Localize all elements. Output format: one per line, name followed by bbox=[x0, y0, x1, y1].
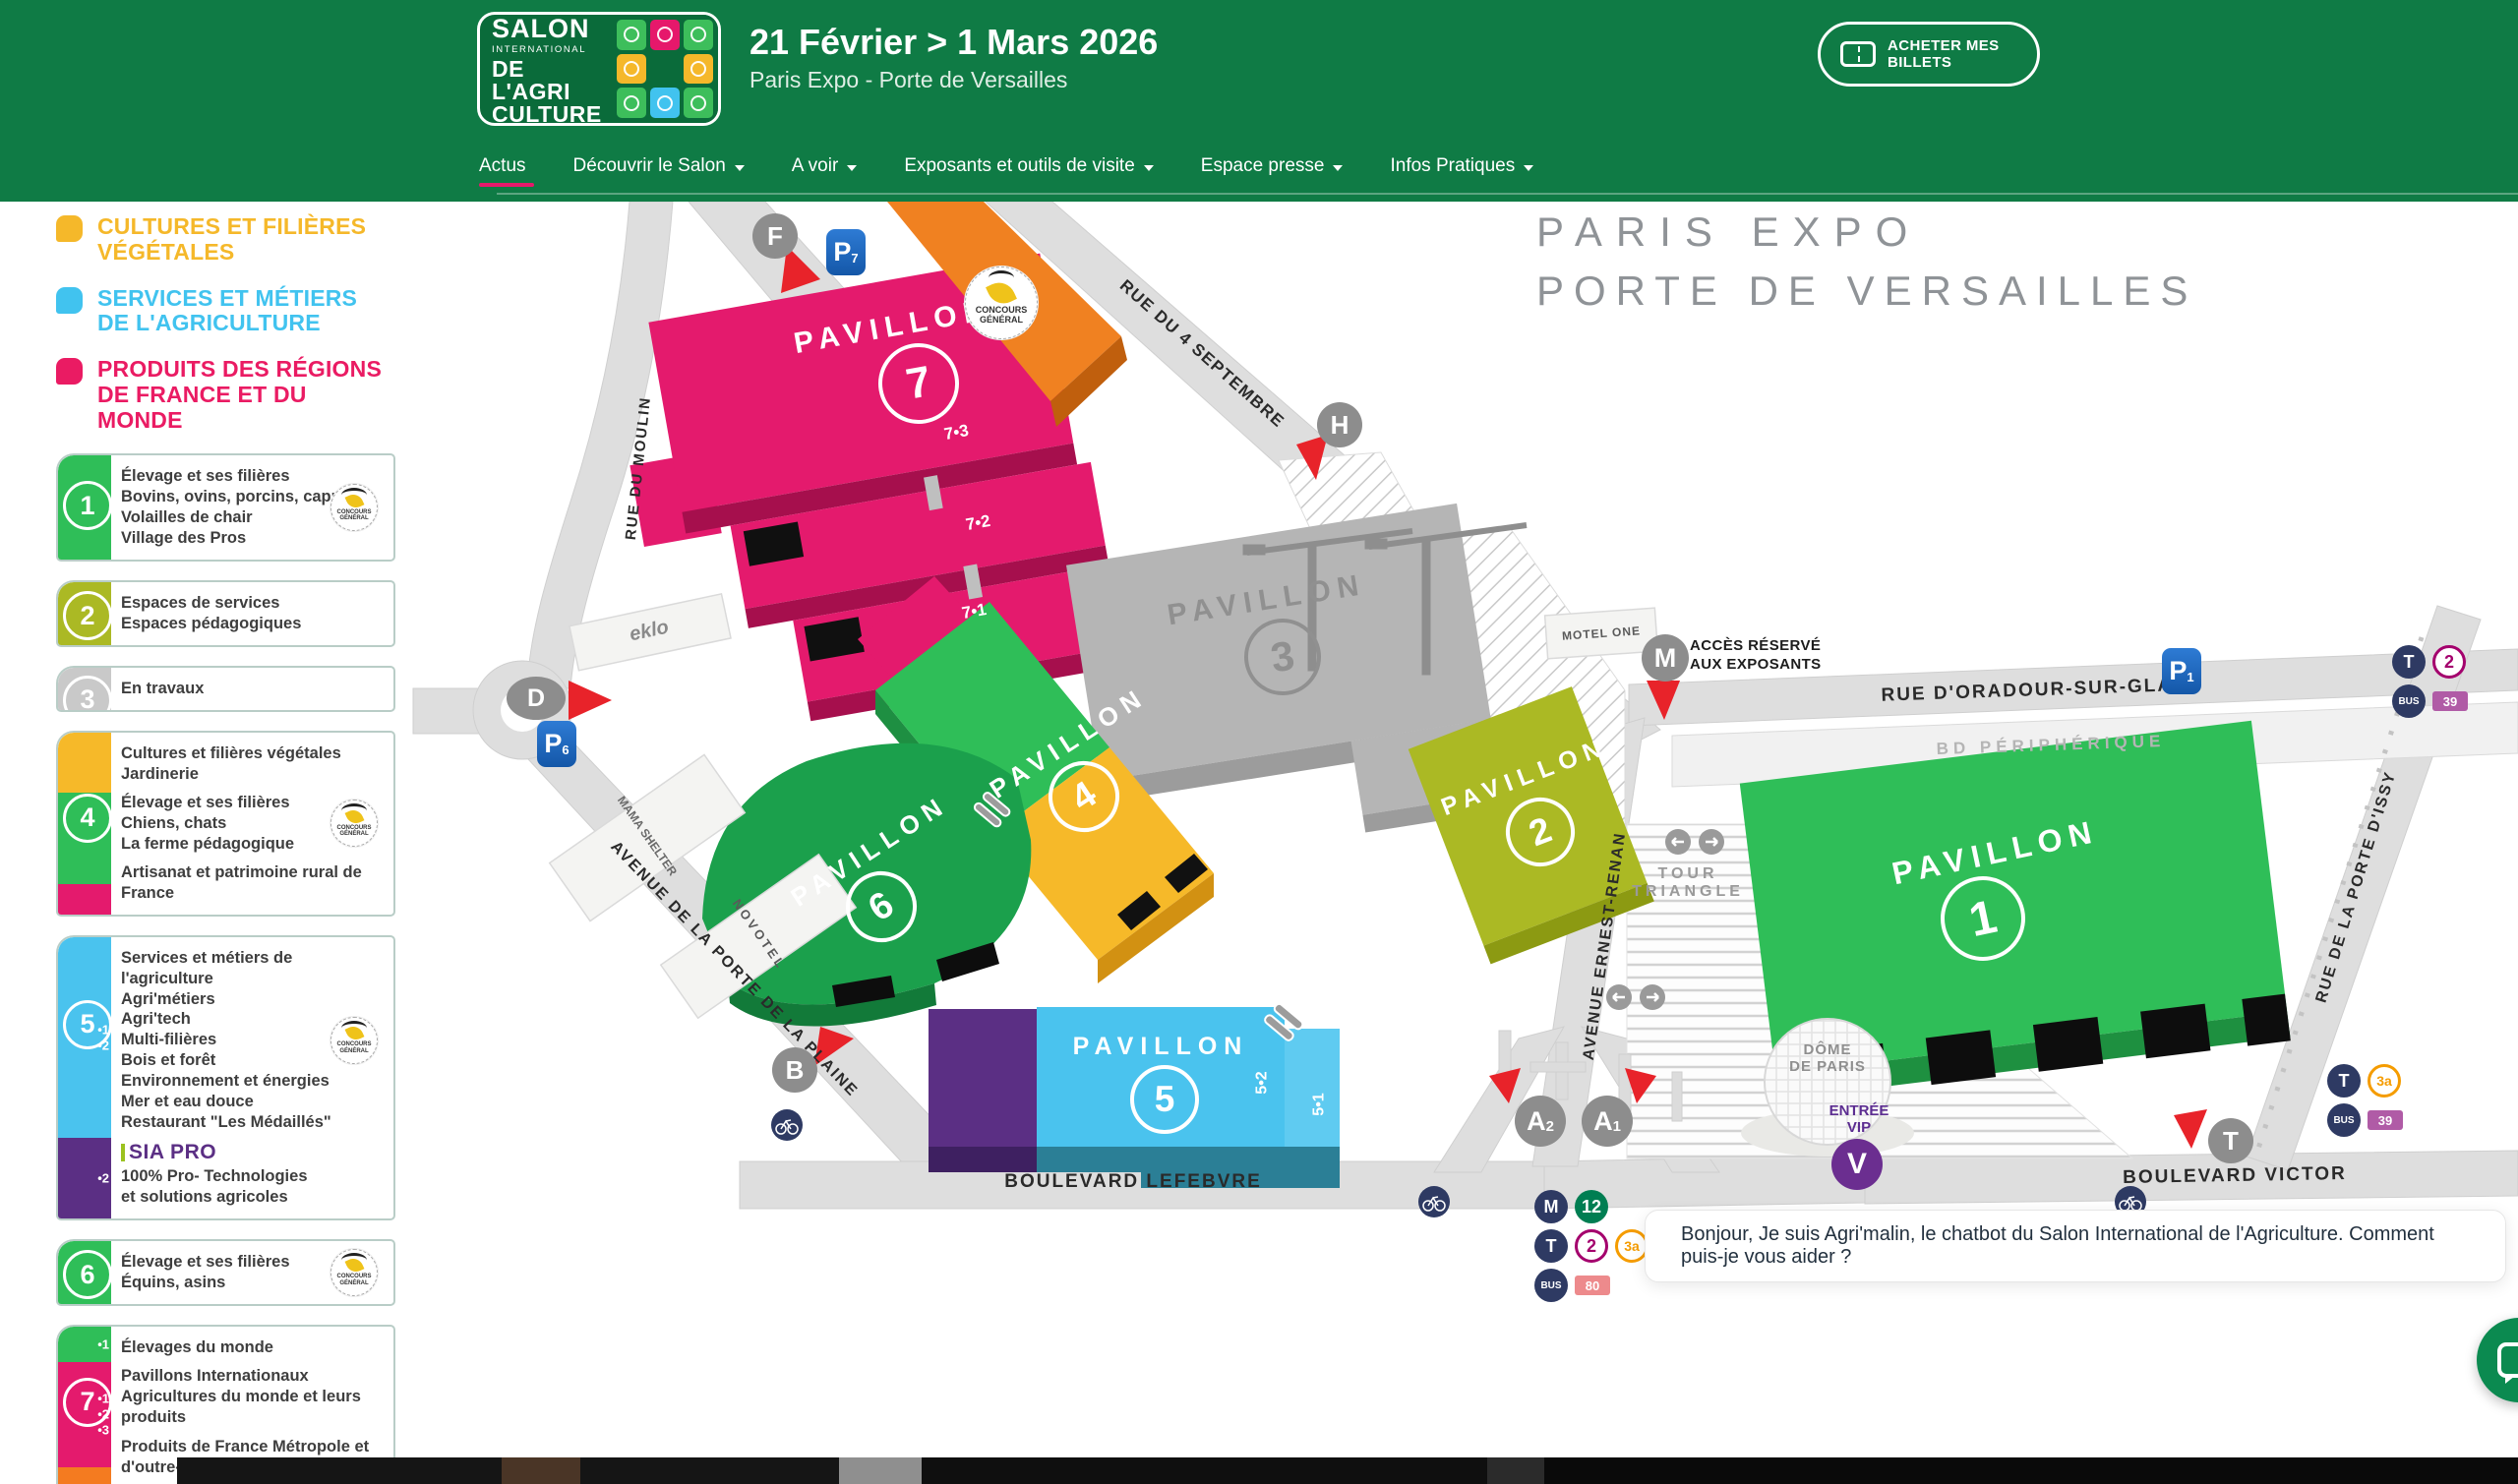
level-5-2: 5•2 bbox=[1254, 1071, 1272, 1094]
transit-badge-bus: BUS bbox=[2327, 1103, 2361, 1137]
category-label: SERVICES ET MÉTIERS DE L'AGRICULTURE bbox=[97, 286, 395, 337]
map-title-line1: PARIS EXPO bbox=[1536, 208, 1921, 256]
oak-leaf-icon bbox=[344, 1256, 364, 1276]
building-motel-one: MOTEL ONE bbox=[1562, 623, 1642, 643]
wheat-icon bbox=[617, 54, 646, 85]
concours-badge-label: CONCOURS GÉNÉRAL bbox=[336, 1041, 371, 1054]
marker-label: •2 bbox=[97, 1172, 109, 1185]
pig-icon bbox=[690, 95, 706, 111]
gate-D: D bbox=[507, 677, 566, 720]
nav-item-d-couvrir-le-salon[interactable]: Découvrir le Salon bbox=[573, 155, 745, 187]
transit-badge-bus: BUS bbox=[2392, 684, 2426, 718]
nav-item-label: A voir bbox=[792, 155, 839, 177]
event-dates: 21 Février > 1 Mars 2026 bbox=[749, 22, 1158, 63]
card-content: Services et métiers de l'agricultureAgri… bbox=[111, 937, 393, 1218]
card-section-text: SIA PRO100% Pro- Technologieset solution… bbox=[121, 1137, 384, 1212]
cow-icon bbox=[684, 20, 713, 50]
sia-map-page: SALON INTERNATIONAL DE L'AGRI CULTURE 21… bbox=[0, 0, 2518, 1484]
marker-label: •1 bbox=[97, 1337, 109, 1350]
rooster-icon bbox=[624, 95, 639, 111]
header-separator bbox=[497, 193, 2518, 195]
gate-M: M bbox=[1642, 634, 1689, 682]
transit-row: T23a bbox=[1534, 1229, 1649, 1263]
concours-badge-label: CONCOURS GÉNÉRAL bbox=[336, 509, 371, 522]
card-number-4: 4 bbox=[63, 794, 112, 843]
site-logo[interactable]: SALON INTERNATIONAL DE L'AGRI CULTURE bbox=[477, 12, 721, 126]
site-header: SALON INTERNATIONAL DE L'AGRI CULTURE 21… bbox=[0, 0, 2518, 202]
card-line bbox=[121, 1428, 384, 1437]
nav-item-label: Exposants et outils de visite bbox=[904, 155, 1134, 177]
category-label: CULTURES ET FILIÈRES VÉGÉTALES bbox=[97, 214, 395, 266]
pig-icon bbox=[684, 88, 713, 118]
legend-card-3: 3En travaux bbox=[56, 666, 395, 712]
transit-row: T2 bbox=[2392, 645, 2468, 679]
pavilion-7-label: PAVILLON bbox=[792, 294, 991, 361]
card-number-1: 1 bbox=[63, 481, 112, 530]
logo-pictogram-grid bbox=[612, 15, 718, 123]
card-line: Jardinerie bbox=[121, 764, 384, 785]
legend-card-6: 6Élevage et ses filièresÉquins, asinsCON… bbox=[56, 1239, 395, 1306]
sia-pro-text: SIA PRO bbox=[129, 1141, 216, 1164]
transit-badge-bus: BUS bbox=[1534, 1269, 1568, 1302]
building-novotel: NOVOTEL bbox=[730, 896, 789, 972]
card-line: Mer et eau douce bbox=[121, 1092, 384, 1112]
legend-cards: 1Élevage et ses filièresBovins, ovins, p… bbox=[56, 453, 395, 1484]
street-rue-du-4-septembre: RUE DU 4 SEPTEMBRE bbox=[1115, 276, 1289, 433]
card-line: et solutions agricoles bbox=[121, 1187, 384, 1208]
card-line: Agri'métiers bbox=[121, 989, 384, 1010]
level-7-3: 7•3 bbox=[942, 421, 970, 445]
main-nav: ActusDécouvrir le SalonA voirExposants e… bbox=[479, 155, 1533, 187]
sia-pro-logo: SIA PRO bbox=[121, 1141, 384, 1164]
buy-tickets-label: ACHETER MES BILLETS bbox=[1888, 37, 2017, 72]
chatbot-message-text: Bonjour, Je suis Agri'malin, le chatbot … bbox=[1681, 1223, 2476, 1269]
concours-general-badge-map: CONCOURS GÉNÉRAL bbox=[965, 267, 1038, 339]
band-section bbox=[58, 884, 111, 915]
card-section-text: Services et métiers de l'agricultureAgri… bbox=[121, 944, 384, 1138]
transit-badge-3a: 3a bbox=[2368, 1064, 2401, 1098]
transit-row: T3a bbox=[2327, 1064, 2403, 1098]
logo-line: CULTURE bbox=[492, 103, 608, 126]
card-number-7: 7 bbox=[63, 1378, 112, 1427]
cow-icon bbox=[690, 27, 706, 42]
band-section: •1 bbox=[58, 1327, 111, 1362]
transit-badge-2: 2 bbox=[1575, 1229, 1608, 1263]
pavilion-3-number: 3 bbox=[1238, 613, 1326, 700]
logo-line: DE L'AGRI bbox=[492, 58, 608, 103]
transit-row: BUS39 bbox=[2327, 1103, 2403, 1137]
parking-p6-icon: P6 bbox=[537, 721, 576, 767]
card-section-text: Élevage et ses filièresBovins, ovins, po… bbox=[121, 462, 384, 553]
band-section bbox=[58, 733, 111, 794]
wine-icon bbox=[657, 27, 673, 42]
legend-category-3: PRODUITS DES RÉGIONS DE FRANCE ET DU MON… bbox=[56, 357, 395, 433]
card-section-text: Artisanat et patrimoine rural de France bbox=[121, 859, 384, 908]
card-line: Pavillons Internationaux bbox=[121, 1366, 384, 1387]
bottom-media-strip bbox=[502, 1457, 580, 1484]
legend-card-1: 1Élevage et ses filièresBovins, ovins, p… bbox=[56, 453, 395, 562]
card-number-6: 6 bbox=[63, 1250, 112, 1299]
street-peripherique: BD PÉRIPHÉRIQUE bbox=[1936, 732, 2165, 759]
legend-card-2: 2Espaces de servicesEspaces pédagogiques bbox=[56, 580, 395, 647]
gate-V-vip: V bbox=[1831, 1139, 1883, 1190]
chatbot-message: Bonjour, Je suis Agri'malin, le chatbot … bbox=[1645, 1210, 2506, 1282]
gate-B: B bbox=[772, 1047, 817, 1093]
wheat-icon bbox=[624, 61, 639, 77]
card-line: Cultures et filières végétales bbox=[121, 743, 384, 764]
nav-item-infos-pratiques[interactable]: Infos Pratiques bbox=[1390, 155, 1533, 187]
street-lefebvre: BOULEVARD LEFEBVRE bbox=[1004, 1171, 1262, 1193]
transit-row: M12 bbox=[1534, 1190, 1649, 1223]
bottom-media-strip bbox=[922, 1457, 1487, 1484]
oak-leaf-icon bbox=[344, 1024, 364, 1043]
band-markers: •2 bbox=[97, 1172, 109, 1185]
transit-badge-39: 39 bbox=[2432, 691, 2468, 711]
gate-T: T bbox=[2208, 1118, 2253, 1163]
card-line: En travaux bbox=[121, 679, 384, 699]
concours-badge-label: CONCOURS GÉNÉRAL bbox=[336, 1274, 371, 1286]
transit-stop-northeast: T2BUS39 bbox=[2392, 645, 2468, 718]
chat-icon bbox=[2497, 1342, 2518, 1378]
card-number-2: 2 bbox=[63, 591, 112, 640]
marker-label: •3 bbox=[97, 1424, 109, 1437]
nav-item-a-voir[interactable]: A voir bbox=[792, 155, 858, 187]
landmark-dome-de-paris: DÔME DE PARIS bbox=[1789, 1041, 1866, 1075]
transit-stop-southeast: T3aBUS39 bbox=[2327, 1064, 2403, 1137]
pavilion-2-number: 2 bbox=[1496, 788, 1585, 876]
pavilion-5-number: 5 bbox=[1130, 1065, 1199, 1134]
category-swatch bbox=[56, 287, 83, 314]
map-legend-sidebar: CULTURES ET FILIÈRES VÉGÉTALESSERVICES E… bbox=[56, 214, 395, 1484]
wine-icon bbox=[650, 20, 680, 50]
concours-badge-label: CONCOURS GÉNÉRAL bbox=[336, 825, 371, 838]
card-section-text: Élevage et ses filièresChiens, chatsLa f… bbox=[121, 789, 384, 859]
transit-stop-southwest: M12T23aBUS80 bbox=[1534, 1190, 1649, 1302]
event-venue: Paris Expo - Porte de Versailles bbox=[749, 67, 1067, 93]
logo-center bbox=[650, 54, 680, 85]
transit-row: BUS39 bbox=[2392, 684, 2468, 718]
card-line: Élevages du monde bbox=[121, 1337, 384, 1358]
chevron-down-icon bbox=[735, 165, 745, 171]
building-eklo: eklo bbox=[628, 617, 671, 647]
gate-A2: A2 bbox=[1515, 1096, 1566, 1147]
chevron-down-icon bbox=[1333, 165, 1343, 171]
ticket-icon bbox=[1840, 41, 1876, 67]
category-swatch bbox=[56, 215, 83, 242]
fruit-icon bbox=[690, 61, 706, 77]
chat-launcher-button[interactable] bbox=[2477, 1318, 2518, 1402]
tree-icon bbox=[650, 88, 680, 118]
transit-badge-t: T bbox=[2327, 1064, 2361, 1098]
card-line: Services et métiers de l'agriculture bbox=[121, 948, 384, 989]
street-moulin: RUE DU MOULIN bbox=[623, 395, 654, 541]
category-label: PRODUITS DES RÉGIONS DE FRANCE ET DU MON… bbox=[97, 357, 395, 433]
logo-line: SALON bbox=[492, 16, 608, 42]
transit-badge-12: 12 bbox=[1575, 1190, 1608, 1223]
oak-leaf-icon bbox=[986, 277, 1017, 309]
card-line: Espaces de services bbox=[121, 593, 384, 614]
chevron-down-icon bbox=[847, 165, 857, 171]
card-section-text: Espaces de servicesEspaces pédagogiques bbox=[121, 589, 384, 638]
level-5-1: 5•1 bbox=[1311, 1093, 1329, 1115]
card-line: Espaces pédagogiques bbox=[121, 614, 384, 634]
logo-line: INTERNATIONAL bbox=[492, 45, 608, 55]
legend-category-1: CULTURES ET FILIÈRES VÉGÉTALES bbox=[56, 214, 395, 266]
tree-icon bbox=[657, 95, 673, 111]
nav-item-label: Espace presse bbox=[1201, 155, 1325, 177]
oak-leaf-icon bbox=[344, 491, 364, 510]
bottom-media-strip bbox=[1544, 1457, 2518, 1484]
concours-general-badge: CONCOURS GÉNÉRAL bbox=[330, 800, 378, 847]
card-section-text: En travaux bbox=[121, 675, 384, 703]
transit-row: BUS80 bbox=[1534, 1269, 1649, 1302]
level-7-1: 7•1 bbox=[960, 600, 988, 623]
card-color-band: •1•2•2 bbox=[58, 937, 111, 1218]
nav-item-exposants-et-outils-de-visite[interactable]: Exposants et outils de visite bbox=[904, 155, 1153, 187]
nav-item-label: Infos Pratiques bbox=[1390, 155, 1515, 177]
gate-H: H bbox=[1317, 402, 1362, 447]
street-oradour: RUE D'ORADOUR-SUR-GLANE bbox=[1881, 674, 2203, 706]
note-entree-vip: ENTRÉE VIP bbox=[1818, 1103, 1900, 1136]
street-victor: BOULEVARD VICTOR bbox=[2123, 1163, 2347, 1189]
nav-item-espace-presse[interactable]: Espace presse bbox=[1201, 155, 1344, 187]
gate-F: F bbox=[752, 213, 798, 259]
transit-badge-39: 39 bbox=[2368, 1110, 2403, 1130]
sia-pro-bar bbox=[121, 1144, 125, 1161]
card-line: Élevage et ses filières bbox=[121, 466, 384, 487]
horse-icon bbox=[617, 20, 646, 50]
pavilion-7-number: 7 bbox=[872, 337, 966, 431]
category-swatch bbox=[56, 358, 83, 385]
legend-category-2: SERVICES ET MÉTIERS DE L'AGRICULTURE bbox=[56, 286, 395, 337]
transit-badge-3a: 3a bbox=[1615, 1229, 1649, 1263]
card-content: Élevage et ses filièresÉquins, asinsCONC… bbox=[111, 1241, 393, 1304]
pavilion-1-number: 1 bbox=[1933, 868, 2033, 969]
parking-p1-icon: P1 bbox=[2162, 648, 2201, 694]
concours-general-badge: CONCOURS GÉNÉRAL bbox=[330, 1249, 378, 1296]
parking-p7-icon: P7 bbox=[826, 229, 866, 275]
card-section-text: Élevage et ses filièresÉquins, asinsCONC… bbox=[121, 1248, 384, 1297]
street-porte-issy: RUE DE LA PORTE D'ISSY bbox=[2313, 769, 2401, 1005]
landmark-tour-triangle: TOUR TRIANGLE bbox=[1632, 865, 1744, 901]
legend-categories: CULTURES ET FILIÈRES VÉGÉTALESSERVICES E… bbox=[56, 214, 395, 433]
logo-wordmark: SALON INTERNATIONAL DE L'AGRI CULTURE bbox=[480, 15, 612, 123]
band-markers: •1 bbox=[97, 1337, 109, 1350]
transit-badge-t: T bbox=[2392, 645, 2426, 679]
card-line: Agricultures du monde et leurs produits bbox=[121, 1387, 384, 1428]
concours-general-badge: CONCOURS GÉNÉRAL bbox=[330, 484, 378, 531]
card-line: Artisanat et patrimoine rural de France bbox=[121, 862, 384, 904]
buy-tickets-button[interactable]: ACHETER MES BILLETS bbox=[1818, 22, 2040, 87]
card-line: Restaurant "Les Médaillés" bbox=[121, 1112, 384, 1133]
card-content: Cultures et filières végétalesJardinerie… bbox=[111, 733, 393, 915]
legend-card-5: •1•2•25Services et métiers de l'agricult… bbox=[56, 935, 395, 1220]
card-number-5: 5 bbox=[63, 1000, 112, 1049]
card-line: Environnement et énergies bbox=[121, 1071, 384, 1092]
band-section: •2 bbox=[58, 1138, 111, 1218]
nav-item-actus[interactable]: Actus bbox=[479, 155, 526, 187]
card-content: Espaces de servicesEspaces pédagogiques bbox=[111, 582, 393, 645]
transit-badge-80: 80 bbox=[1575, 1276, 1610, 1295]
transit-badge-t: T bbox=[1534, 1229, 1568, 1263]
gate-A1: A1 bbox=[1582, 1096, 1633, 1147]
nav-item-label: Actus bbox=[479, 155, 526, 177]
nav-item-label: Découvrir le Salon bbox=[573, 155, 726, 177]
concours-badge-label: CONCOURS GÉNÉRAL bbox=[976, 306, 1028, 326]
card-line: Village des Pros bbox=[121, 528, 384, 549]
transit-badge-m: M bbox=[1534, 1190, 1568, 1223]
rooster-icon bbox=[617, 88, 646, 118]
level-7-2: 7•2 bbox=[964, 511, 991, 535]
bottom-media-strip bbox=[839, 1457, 922, 1484]
card-section-text: Élevages du monde bbox=[121, 1334, 384, 1362]
fruit-icon bbox=[684, 54, 713, 85]
legend-card-4: 4Cultures et filières végétalesJardineri… bbox=[56, 731, 395, 917]
street-ernest-renan: AVENUE ERNEST-RENAN bbox=[1581, 831, 1630, 1061]
card-section-text: Cultures et filières végétalesJardinerie bbox=[121, 740, 384, 789]
concours-general-badge: CONCOURS GÉNÉRAL bbox=[330, 1017, 378, 1064]
chevron-down-icon bbox=[1524, 165, 1533, 171]
bottom-media-strip bbox=[1487, 1457, 1544, 1484]
card-line: 100% Pro- Technologies bbox=[121, 1166, 384, 1187]
map-title-line2: PORTE DE VERSAILLES bbox=[1536, 267, 2197, 315]
note-acces-exposants: ACCÈS RÉSERVÉ AUX EXPOSANTS bbox=[1690, 637, 1822, 675]
pavilion-5-label: PAVILLON bbox=[1062, 1033, 1259, 1061]
oak-leaf-icon bbox=[344, 806, 364, 826]
horse-icon bbox=[624, 27, 639, 42]
transit-badge-2: 2 bbox=[2432, 645, 2466, 679]
band-section: •3 bbox=[58, 1467, 111, 1484]
card-content: Élevage et ses filièresBovins, ovins, po… bbox=[111, 455, 393, 560]
card-content: En travaux bbox=[111, 668, 393, 710]
chevron-down-icon bbox=[1144, 165, 1154, 171]
